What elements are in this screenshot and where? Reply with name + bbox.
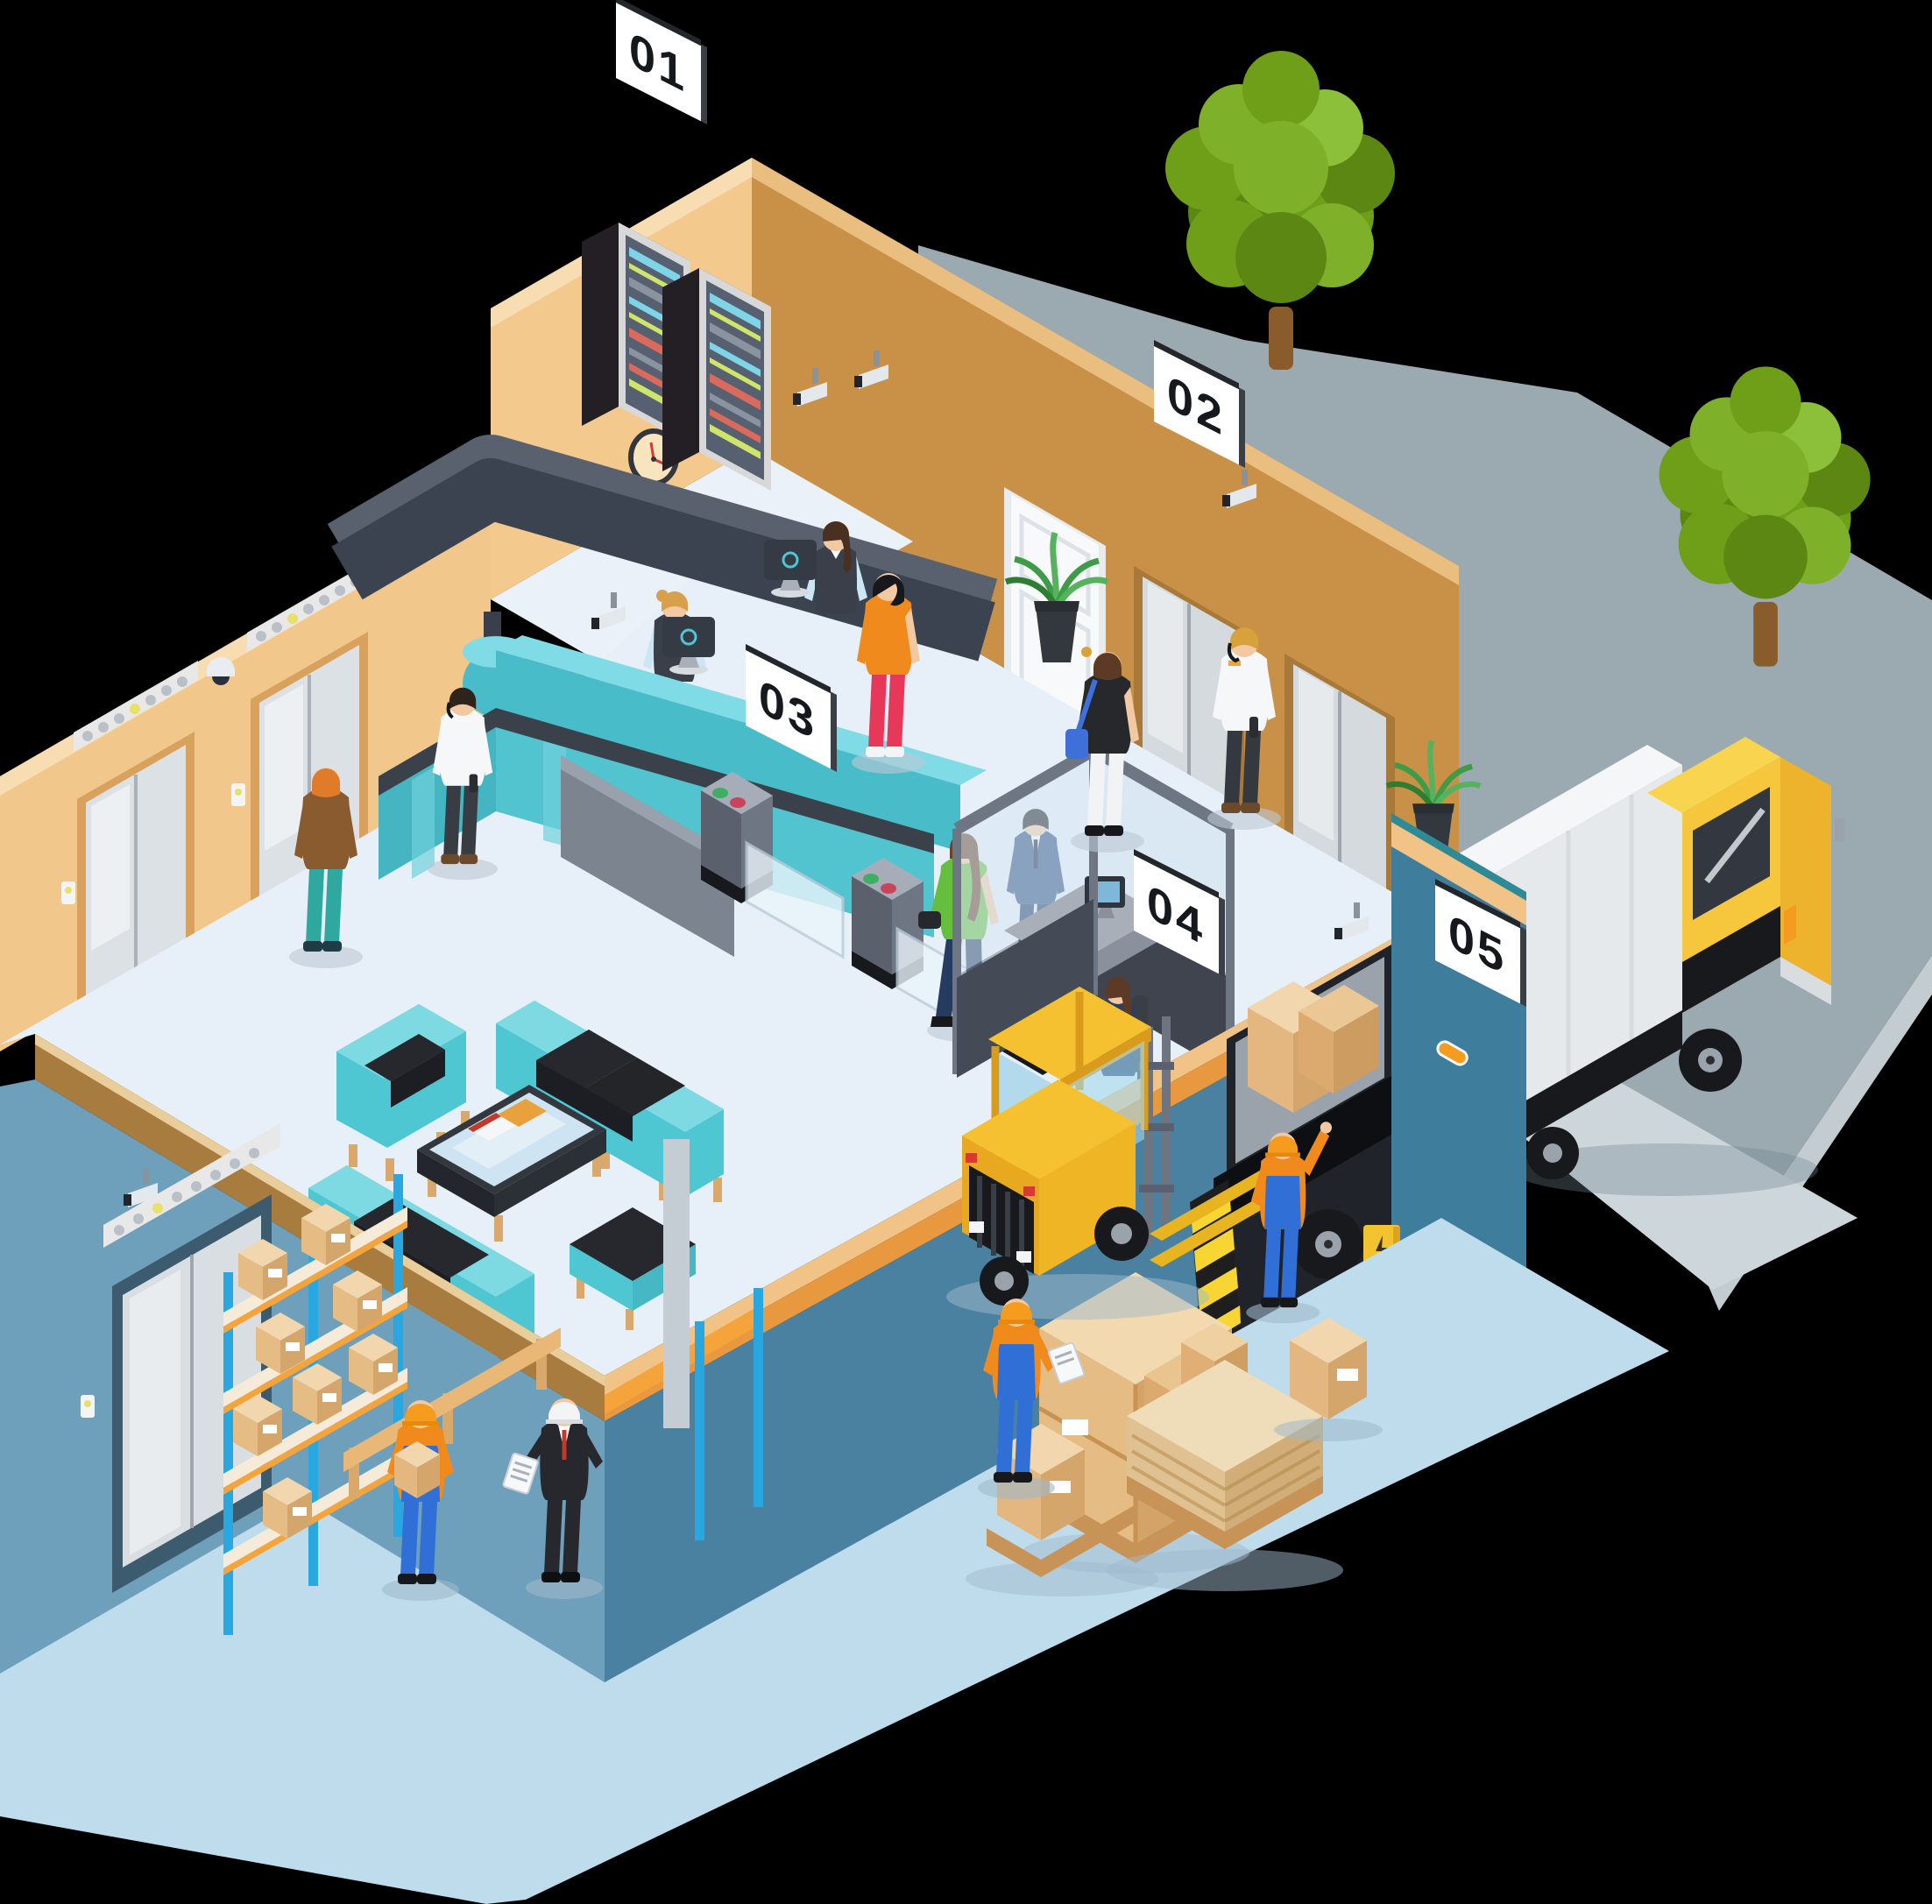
support-column	[663, 1139, 690, 1428]
isometric-building-scene: 02	[0, 0, 1932, 1904]
server-rack	[662, 268, 771, 491]
